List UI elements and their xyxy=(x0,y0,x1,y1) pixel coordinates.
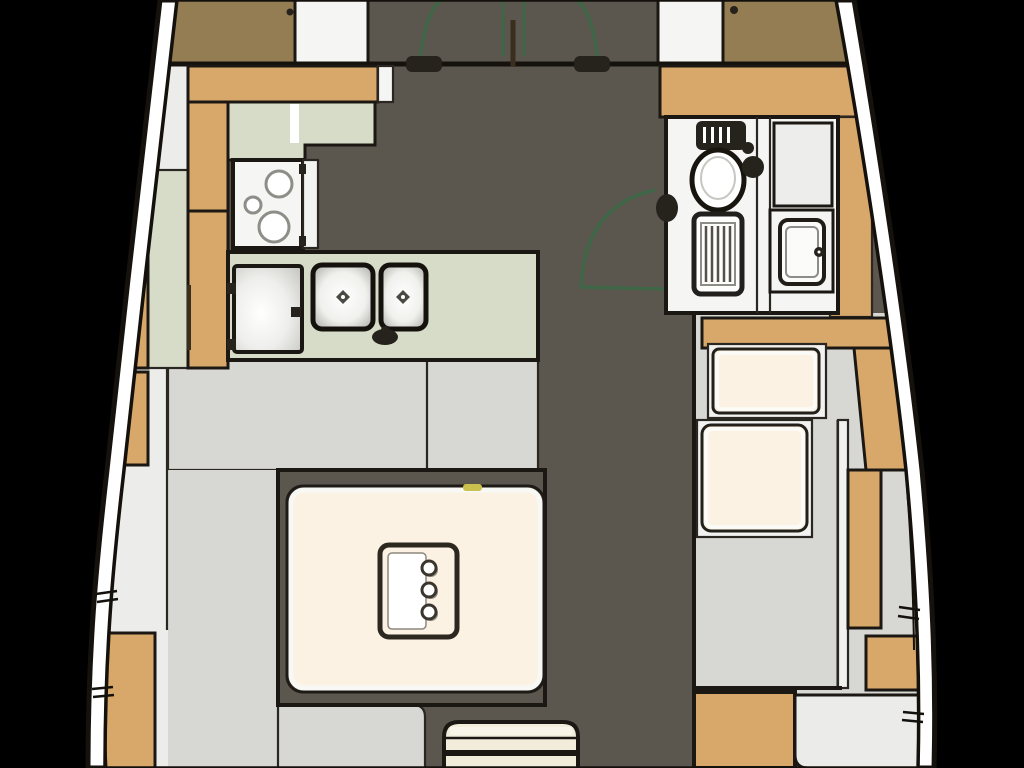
right-door-hinge xyxy=(574,56,610,72)
rail-bracket-top xyxy=(299,164,306,174)
aft-wood-locker xyxy=(694,692,795,768)
fridge-hinge-bottom xyxy=(227,339,236,350)
stbd-forward-doorway xyxy=(658,0,723,64)
burner-small xyxy=(245,197,261,213)
tank-slit-4 xyxy=(727,127,730,143)
bottle-holder-well xyxy=(388,553,426,629)
sink-drain-dot-small xyxy=(401,295,405,299)
galley-band-end-cap xyxy=(378,66,393,102)
fridge-hinge-top xyxy=(227,283,236,294)
head-door-hinge xyxy=(656,194,678,222)
galley-lower-counter xyxy=(227,252,538,360)
bottle-ring-2 xyxy=(422,583,436,597)
table-inset-bottle-holder xyxy=(380,545,457,637)
aft-walkway-floor xyxy=(278,705,425,768)
tank-slit-3 xyxy=(719,127,722,143)
floorplan-canvas: { "meta": { "title": "Sailboat interior … xyxy=(0,0,1024,768)
bottle-ring-3 xyxy=(422,605,436,619)
nav-seat xyxy=(708,344,826,418)
washbasin-faucet-dot xyxy=(818,251,821,254)
fridge-handle xyxy=(291,307,301,317)
stbd-door-knob xyxy=(730,6,738,14)
left-door-hinge xyxy=(406,56,442,72)
nav-seat-cushion xyxy=(713,349,819,413)
port-walkway-floor xyxy=(168,470,278,768)
bottle-ring-1 xyxy=(422,561,436,575)
head-storage-cabinet xyxy=(774,123,832,206)
stool-highlight xyxy=(450,727,572,735)
sink-drain-dot-large xyxy=(341,295,345,299)
shower-grate xyxy=(694,214,742,294)
galley-top-wood-band xyxy=(188,66,378,102)
head-top-wood-band xyxy=(660,66,875,117)
galley-floor-panels xyxy=(168,360,538,470)
burner-large-bottom xyxy=(259,212,289,242)
washbasin xyxy=(770,210,833,292)
toilet-bowl-inner xyxy=(701,157,735,199)
toilet-pump xyxy=(742,156,764,178)
tank-slit-2 xyxy=(711,127,714,143)
upper-counter-divider xyxy=(290,104,299,143)
interior xyxy=(86,0,934,768)
rail-bracket-bottom xyxy=(299,236,306,246)
aft-corner-panel xyxy=(795,695,932,768)
galley-faucet-base xyxy=(381,326,389,334)
tank-slit-1 xyxy=(703,127,706,143)
table-latch-accent xyxy=(463,484,482,491)
floorplan-svg xyxy=(0,0,1024,768)
port-door-knob xyxy=(287,9,294,16)
nav-hull-wood-strip xyxy=(848,470,881,628)
striped-stool-seat xyxy=(444,722,578,768)
three-burner-stove xyxy=(233,160,318,248)
chart-table-top xyxy=(702,425,807,531)
burner-large-top xyxy=(266,171,292,197)
port-forward-doorway xyxy=(295,0,368,64)
chart-table xyxy=(697,420,812,537)
toilet-pump-knob xyxy=(742,142,754,154)
galley-side-wood-panel xyxy=(188,66,228,368)
